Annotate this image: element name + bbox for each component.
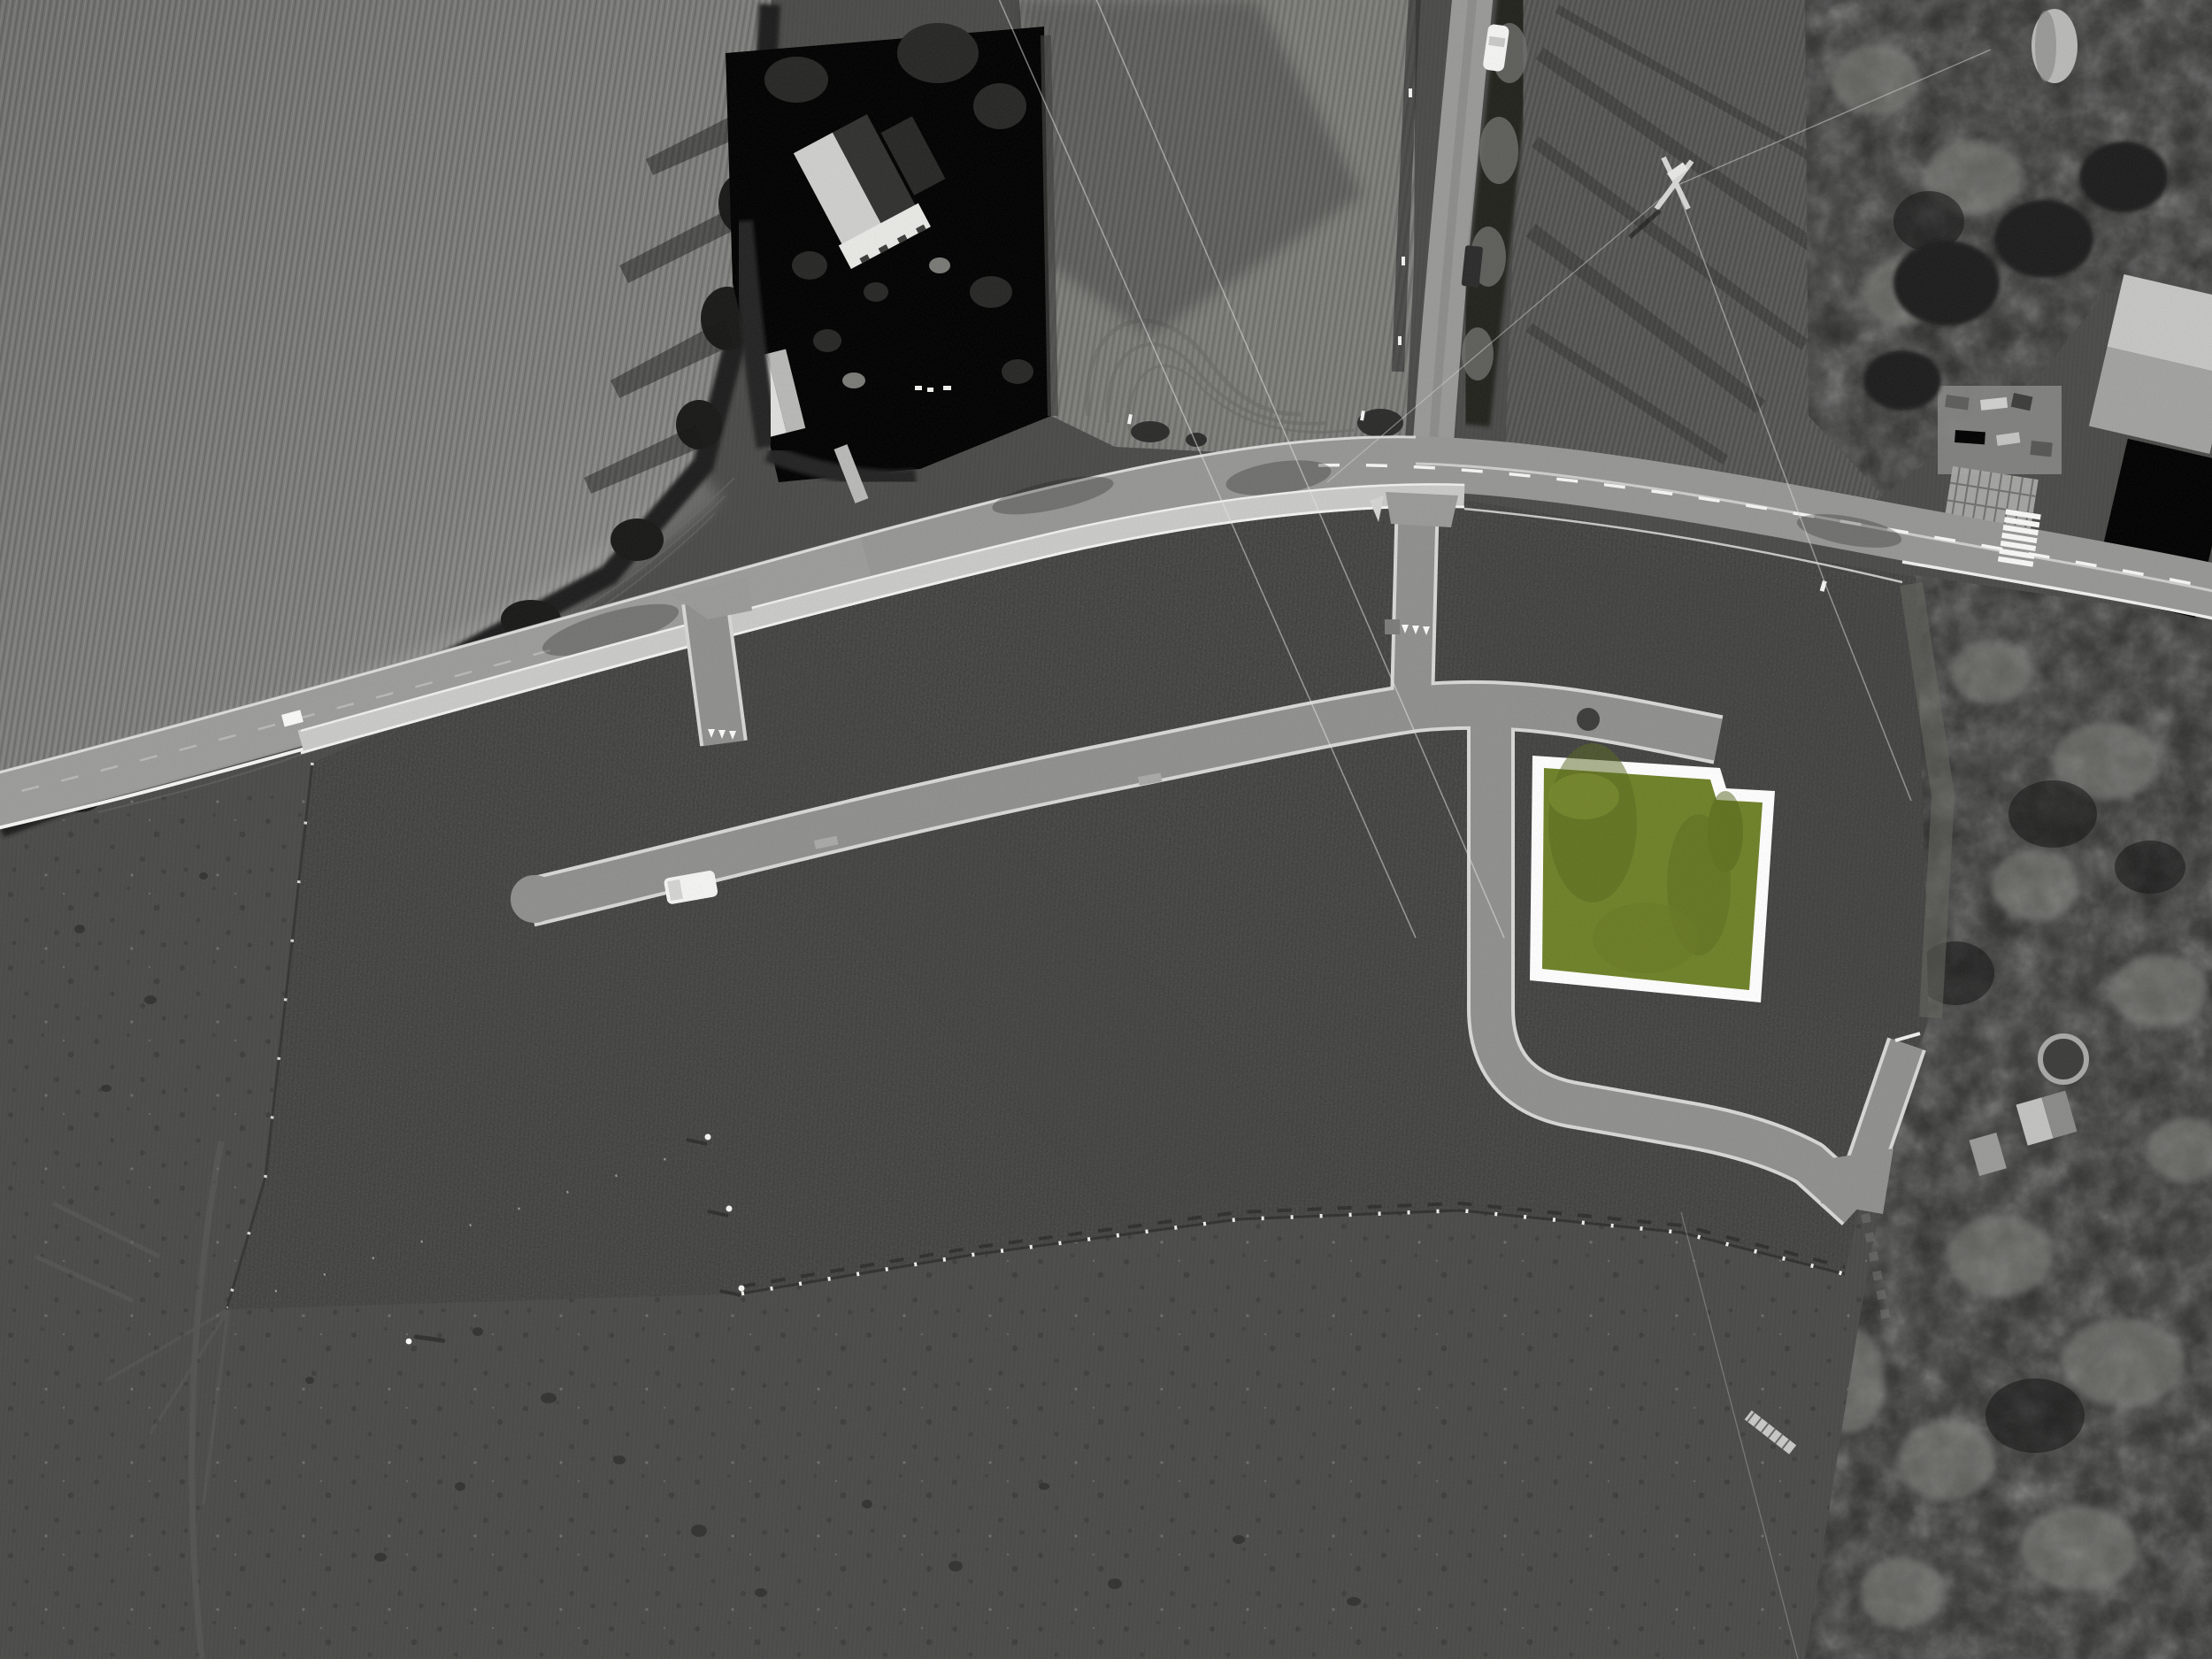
aerial-photo bbox=[0, 0, 2212, 1659]
photo-grain-light bbox=[0, 0, 2212, 1659]
